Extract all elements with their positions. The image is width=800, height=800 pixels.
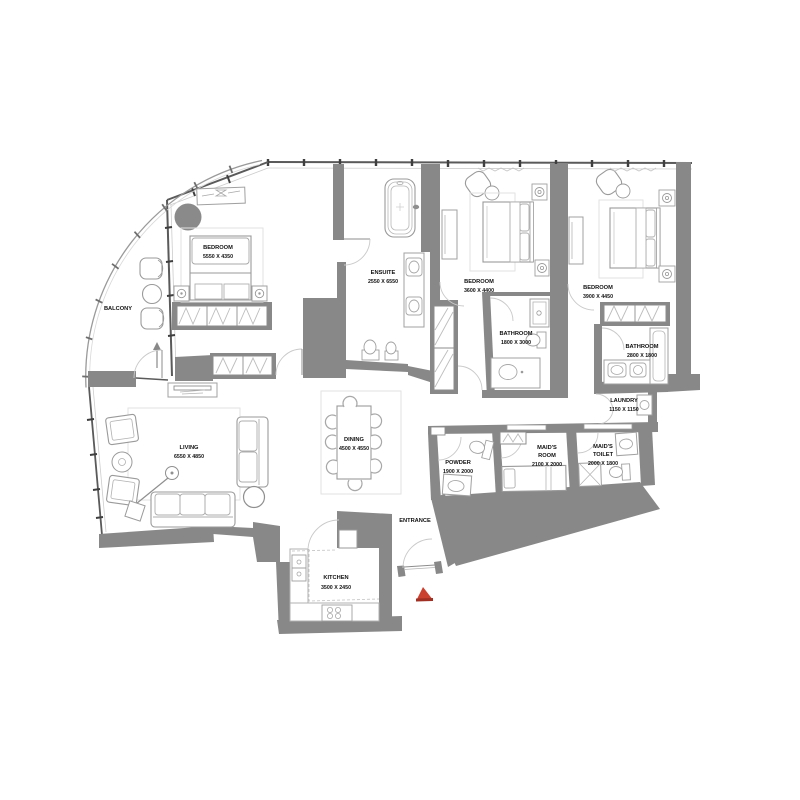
svg-text:LAUNDRY: LAUNDRY	[610, 398, 638, 404]
svg-text:3600 X 4400: 3600 X 4400	[464, 288, 494, 294]
svg-text:2000 X 1800: 2000 X 1800	[588, 461, 618, 467]
svg-text:BEDROOM: BEDROOM	[583, 285, 613, 291]
svg-text:2550 X 6550: 2550 X 6550	[368, 279, 398, 285]
svg-text:TOILET: TOILET	[593, 452, 614, 458]
svg-text:4500 X 4550: 4500 X 4550	[339, 446, 369, 452]
svg-text:1800 X 3000: 1800 X 3000	[501, 340, 531, 346]
svg-text:ROOM: ROOM	[538, 453, 556, 459]
svg-text:BATHROOM: BATHROOM	[499, 331, 532, 337]
svg-text:1150 X 1150: 1150 X 1150	[609, 407, 639, 413]
svg-text:MAID'S: MAID'S	[537, 445, 557, 451]
svg-text:POWDER: POWDER	[445, 460, 471, 466]
svg-text:1900 X 2000: 1900 X 2000	[443, 469, 473, 475]
svg-text:KITCHEN: KITCHEN	[323, 575, 348, 581]
svg-text:2100 X 2000: 2100 X 2000	[532, 462, 562, 468]
svg-text:LIVING: LIVING	[180, 445, 200, 451]
svg-text:MAID'S: MAID'S	[593, 444, 613, 450]
svg-text:2800 X 1800: 2800 X 1800	[627, 353, 657, 359]
svg-text:ENTRANCE: ENTRANCE	[399, 518, 431, 524]
svg-text:BATHROOM: BATHROOM	[625, 344, 658, 350]
svg-text:3900 X 4450: 3900 X 4450	[583, 294, 613, 300]
svg-text:ENSUITE: ENSUITE	[371, 270, 396, 276]
svg-text:BALCONY: BALCONY	[104, 306, 132, 312]
svg-text:3500 X 2450: 3500 X 2450	[321, 585, 351, 591]
svg-text:BEDROOM: BEDROOM	[203, 245, 233, 251]
svg-text:BEDROOM: BEDROOM	[464, 279, 494, 285]
svg-text:6550 X 4850: 6550 X 4850	[174, 454, 204, 460]
svg-text:DINING: DINING	[344, 437, 364, 443]
svg-text:5550 X 4350: 5550 X 4350	[203, 254, 233, 260]
